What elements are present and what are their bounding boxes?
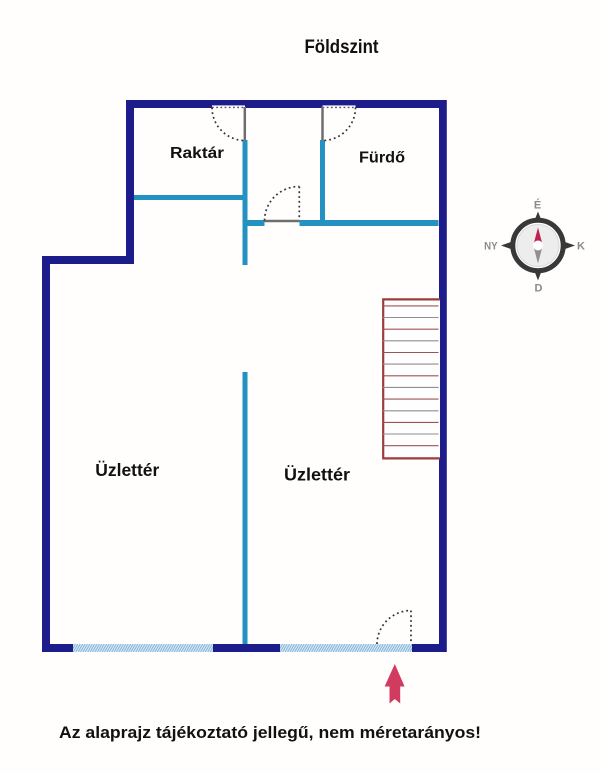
svg-text:Üzlettér: Üzlettér bbox=[95, 460, 159, 480]
svg-text:D: D bbox=[535, 283, 543, 295]
svg-text:Az alaprajz tájékoztató jelleg: Az alaprajz tájékoztató jellegű, nem mér… bbox=[59, 724, 481, 742]
svg-text:NY: NY bbox=[484, 241, 498, 253]
svg-text:Földszint: Földszint bbox=[305, 36, 379, 58]
svg-text:É: É bbox=[534, 199, 541, 212]
svg-text:K: K bbox=[577, 241, 585, 253]
svg-text:Raktár: Raktár bbox=[170, 145, 224, 162]
svg-text:Fürdő: Fürdő bbox=[359, 150, 405, 167]
svg-text:Üzlettér: Üzlettér bbox=[284, 465, 350, 485]
